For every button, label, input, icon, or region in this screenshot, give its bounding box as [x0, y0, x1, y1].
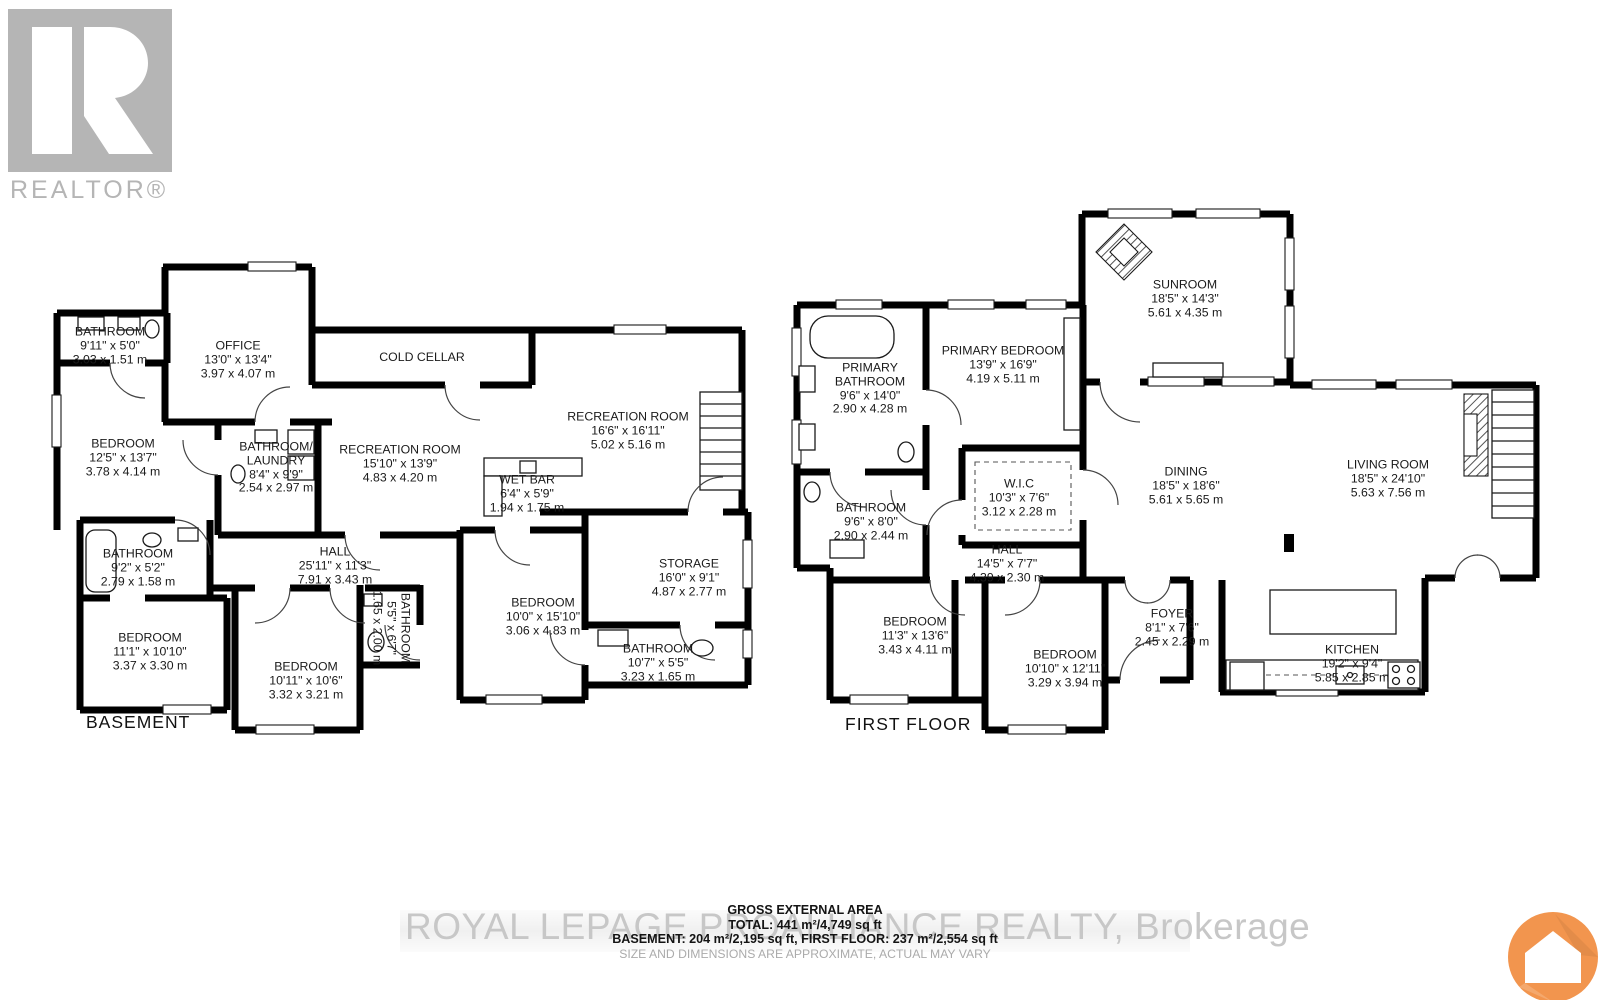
room-label-bathroom: BATHROOM9'2" x 5'2"2.79 x 1.58 m [101, 547, 176, 588]
room-label-bedroom: BEDROOM12'5" x 13'7"3.78 x 4.14 m [86, 437, 161, 478]
room-label-bathroom: BATHROOM9'11" x 5'0"3.03 x 1.51 m [73, 325, 148, 366]
room-label-bathroom-laundry: BATHROOM/LAUNDRY8'4" x 9'9"2.54 x 2.97 m [239, 440, 314, 495]
floorplan-page: REALTOR® [0, 0, 1600, 1000]
gross-area-title: GROSS EXTERNAL AREA [420, 903, 1190, 918]
room-label-wet-bar: WET BAR6'4" x 5'9"1.94 x 1.75 m [490, 473, 565, 514]
room-label-recreation-room: RECREATION ROOM16'6" x 16'11"5.02 x 5.16… [567, 410, 688, 451]
room-label-living-room: LIVING ROOM18'5" x 24'10"5.63 x 7.56 m [1347, 458, 1429, 499]
gross-area-total: TOTAL: 441 m²/4,749 sq ft [420, 918, 1190, 933]
room-label-primary-bathroom: PRIMARYBATHROOM9'6" x 14'0"2.90 x 4.28 m [833, 361, 908, 416]
room-label-primary-bedroom: PRIMARY BEDROOM13'9" x 16'9"4.19 x 5.11 … [942, 344, 1065, 385]
floor-title-basement: BASEMENT [86, 712, 190, 733]
room-labels-layer: BATHROOM9'11" x 5'0"3.03 x 1.51 mOFFICE1… [0, 0, 1600, 1000]
room-label-bedroom: BEDROOM11'1" x 10'10"3.37 x 3.30 m [113, 631, 188, 672]
gross-area-breakdown: BASEMENT: 204 m²/2,195 sq ft, FIRST FLOO… [420, 932, 1190, 947]
room-label-cold-cellar: COLD CELLAR [379, 351, 464, 365]
room-label-bedroom: BEDROOM10'0" x 15'10"3.06 x 4.83 m [506, 596, 581, 637]
room-label-bathroom: BATHROOM10'7" x 5'5"3.23 x 1.65 m [621, 642, 696, 683]
room-label-kitchen: KITCHEN19'2" x 9'4"5.85 x 2.85 m [1315, 643, 1390, 684]
room-label-hall: HALL25'11" x 11'3"7.91 x 3.43 m [298, 545, 373, 586]
room-label-foyer: FOYER8'1" x 7'6"2.45 x 2.29 m [1135, 607, 1210, 648]
room-label-hall: HALL14'5" x 7'7"4.39 x 2.30 m [970, 543, 1045, 584]
room-label-bathroom: BATHROOM9'6" x 8'0"2.90 x 2.44 m [834, 501, 909, 542]
room-label-dining: DINING18'5" x 18'6"5.61 x 5.65 m [1149, 465, 1224, 506]
room-label-w-i-c: W.I.C10'3" x 7'6"3.12 x 2.28 m [982, 477, 1057, 518]
room-label-storage: STORAGE16'0" x 9'1"4.87 x 2.77 m [652, 557, 727, 598]
room-label-bedroom: BEDROOM10'10" x 12'11"3.29 x 3.94 m [1025, 648, 1105, 689]
size-disclaimer: SIZE AND DIMENSIONS ARE APPROXIMATE, ACT… [420, 947, 1190, 962]
floorplan-app-logo-icon [1507, 911, 1600, 1000]
room-label-bathroom: BATHROOM5'5" x 6'7"1.65 x 2.00 m [370, 591, 411, 666]
room-label-office: OFFICE13'0" x 13'4"3.97 x 4.07 m [201, 339, 276, 380]
floor-title-first-floor: FIRST FLOOR [845, 714, 971, 735]
area-summary: GROSS EXTERNAL AREA TOTAL: 441 m²/4,749 … [420, 903, 1190, 961]
room-label-recreation-room: RECREATION ROOM15'10" x 13'9"4.83 x 4.20… [339, 443, 460, 484]
room-label-bedroom: BEDROOM10'11" x 10'6"3.32 x 3.21 m [269, 660, 344, 701]
room-label-sunroom: SUNROOM18'5" x 14'3"5.61 x 4.35 m [1148, 278, 1223, 319]
room-label-bedroom: BEDROOM11'3" x 13'6"3.43 x 4.11 m [878, 615, 952, 656]
